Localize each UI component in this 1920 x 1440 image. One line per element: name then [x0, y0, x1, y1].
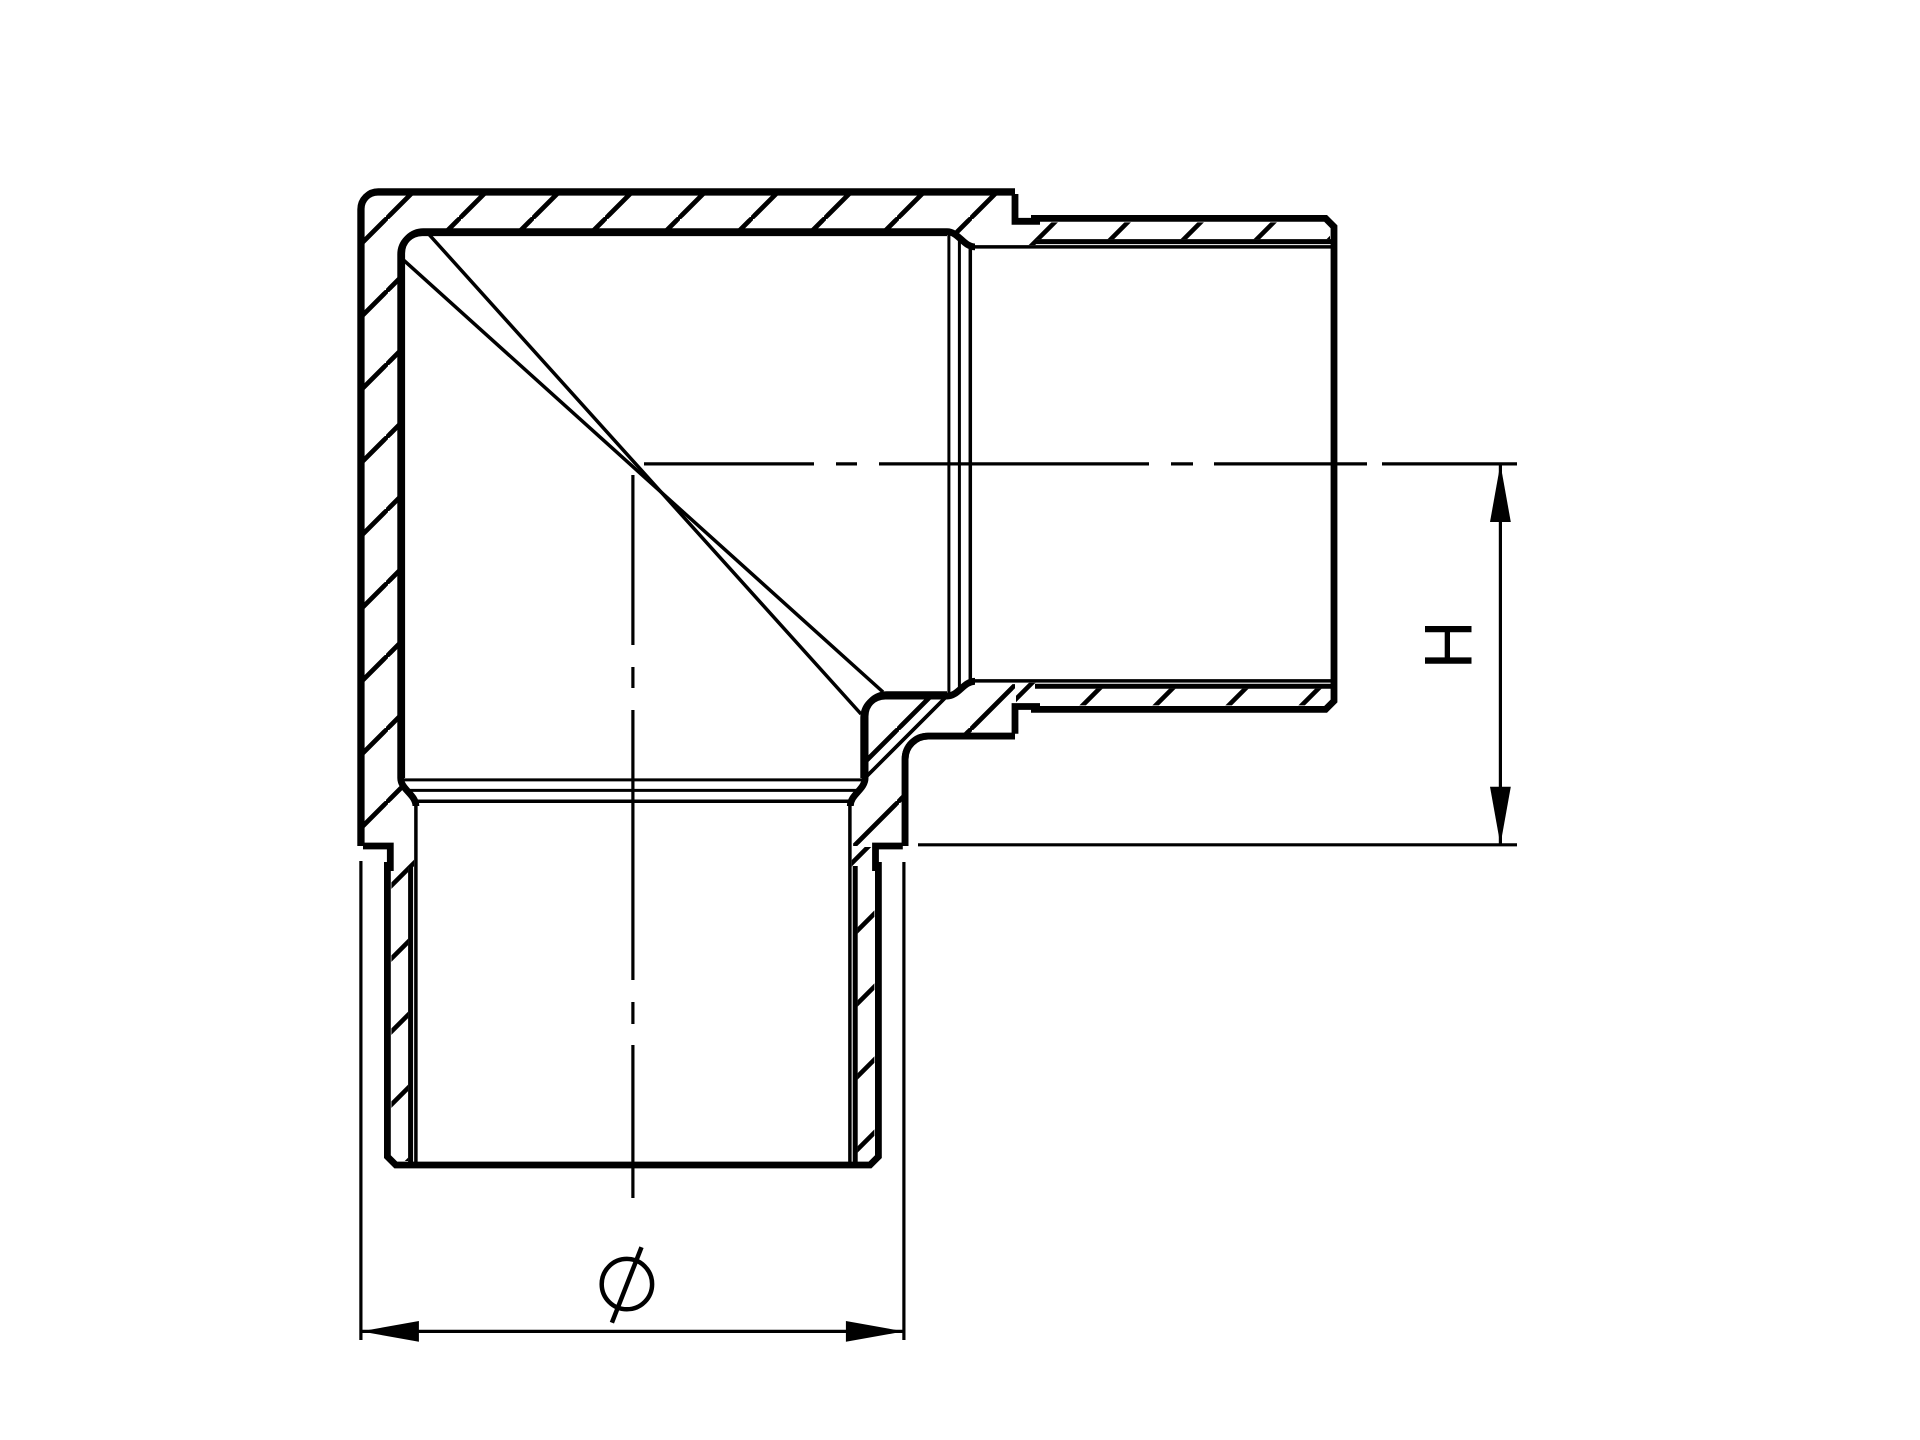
svg-text:H: H: [1412, 621, 1487, 670]
